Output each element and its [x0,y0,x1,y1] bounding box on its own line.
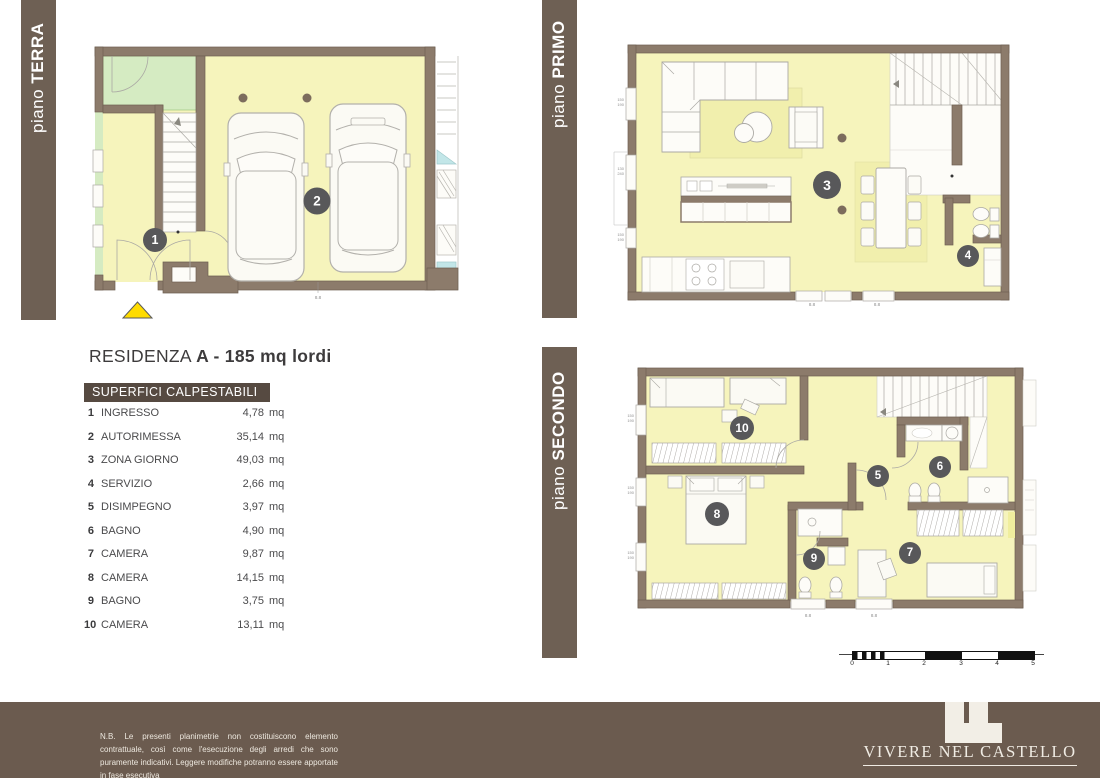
secondo-dim-marks: 8.8 8.8 [805,613,878,618]
scale-segment [853,652,889,659]
floor-label-terra-text: piano TERRA [28,23,48,133]
floorplan-terra: 1 2 8.8 [88,40,470,340]
svg-text:8.8: 8.8 [874,302,881,307]
table-row: 2AUTORIMESSA35,14mq [84,426,270,450]
brand-name: VIVERE NEL CASTELLO [863,742,1077,766]
table-row: 7CAMERA9,87mq [84,543,270,567]
primo-staircase [890,53,1001,195]
svg-text:190: 190 [617,237,624,242]
terra-left-windows [93,150,103,247]
svg-text:190: 190 [627,490,634,495]
castle-icon [945,702,964,723]
floor-label-prefix: piano [549,79,568,128]
brochure-page: piano TERRA piano PRIMO piano SECONDO [0,0,1100,778]
floor-label-name: TERRA [28,23,47,84]
room-number-6: 6 [937,461,943,473]
table-row: 8CAMERA14,15mq [84,567,270,591]
scale-segment [998,652,1034,659]
floor-label-primo: piano PRIMO [542,0,577,318]
column-dot [239,94,248,103]
scale-label: 1 [886,660,890,667]
room-number-10: 10 [735,421,749,435]
room-number-4: 4 [965,250,972,262]
scale-segment [925,652,961,659]
column-dot [838,206,847,215]
terra-entry-window [172,267,196,282]
table-row: 9BAGNO3,75mq [84,590,270,614]
table-row: 10CAMERA13,11mq [84,614,270,638]
room-number-2: 2 [313,194,321,209]
castle-icon [945,723,1002,743]
svg-text:8.8: 8.8 [809,302,816,307]
svg-text:190: 190 [617,102,624,107]
residence-size: A - 185 mq lordi [196,346,331,366]
room-number-3: 3 [823,177,831,193]
terra-exterior-stair [437,56,458,290]
svg-text:8.8: 8.8 [871,613,878,618]
svg-text:8.8: 8.8 [805,613,812,618]
scale-label: 0 [850,660,854,667]
castle-icon [969,702,988,723]
room-number-1: 1 [152,233,159,247]
scale-label: 3 [959,660,963,667]
entrance-arrow [123,302,152,318]
secondo-left-windows: 150 190 150 190 150 190 [627,405,646,571]
scale-label: 2 [922,660,926,667]
kitchen-island [681,177,791,222]
terra-staircase [163,113,196,234]
page-title: RESIDENZA A - 185 mq lordi [89,346,332,367]
scale-label: 4 [995,660,999,667]
svg-text:190: 190 [627,418,634,423]
room-number-9: 9 [811,553,817,565]
floor-label-secondo: piano SECONDO [542,347,577,658]
disclaimer-text: N.B. Le presenti planimetrie non costitu… [100,730,338,778]
floor-label-primo-text: piano PRIMO [549,20,569,128]
svg-text:190: 190 [627,555,634,560]
floor-label-prefix: piano [549,461,568,510]
surfaces-table: 1INGRESSO4,78mq 2AUTORIMESSA35,14mq 3ZON… [84,402,270,637]
room-number-7: 7 [907,547,913,559]
floor-label-secondo-text: piano SECONDO [549,371,569,510]
car-1 [224,113,308,281]
svg-text:8.8: 8.8 [315,295,322,300]
armchair [789,107,823,148]
floor-label-name: SECONDO [549,371,568,460]
surfaces-table-header: SUPERFICI CALPESTABILI [84,383,270,402]
floor-label-terra: piano TERRA [21,0,56,320]
table-row: 4SERVIZIO2,66mq [84,473,270,497]
dining-set [861,168,921,248]
scale-bar: 0 1 2 3 4 5 [845,645,1045,669]
car-2 [326,104,410,272]
table-row: 3ZONA GIORNO49,03mq [84,449,270,473]
residence-name: RESIDENZA [89,346,191,366]
column-dot [838,134,847,143]
scale-segment [962,652,998,659]
floorplan-secondo: 150 190 150 190 150 190 [612,355,1044,623]
table-row: 6BAGNO4,90mq [84,520,270,544]
room-number-5: 5 [875,470,882,482]
scale-label: 5 [1031,660,1035,667]
svg-text:240: 240 [617,171,624,176]
scale-bar-segments [852,651,1035,660]
table-row: 5DISIMPEGNO3,97mq [84,496,270,520]
kitchen-counter [642,257,790,292]
floorplan-primo: 150 190 130 240 150 190 [612,38,1012,308]
floor-label-prefix: piano [28,84,47,133]
coffee-table-small [735,124,754,143]
table-row: 1INGRESSO4,78mq [84,402,270,426]
scale-segment [889,652,925,659]
primo-bottom-openings [796,291,894,301]
primo-dim-marks: 8.8 8.8 [809,302,881,307]
room-number-8: 8 [714,507,721,521]
floor-label-name: PRIMO [549,20,568,78]
column-dot [303,94,312,103]
